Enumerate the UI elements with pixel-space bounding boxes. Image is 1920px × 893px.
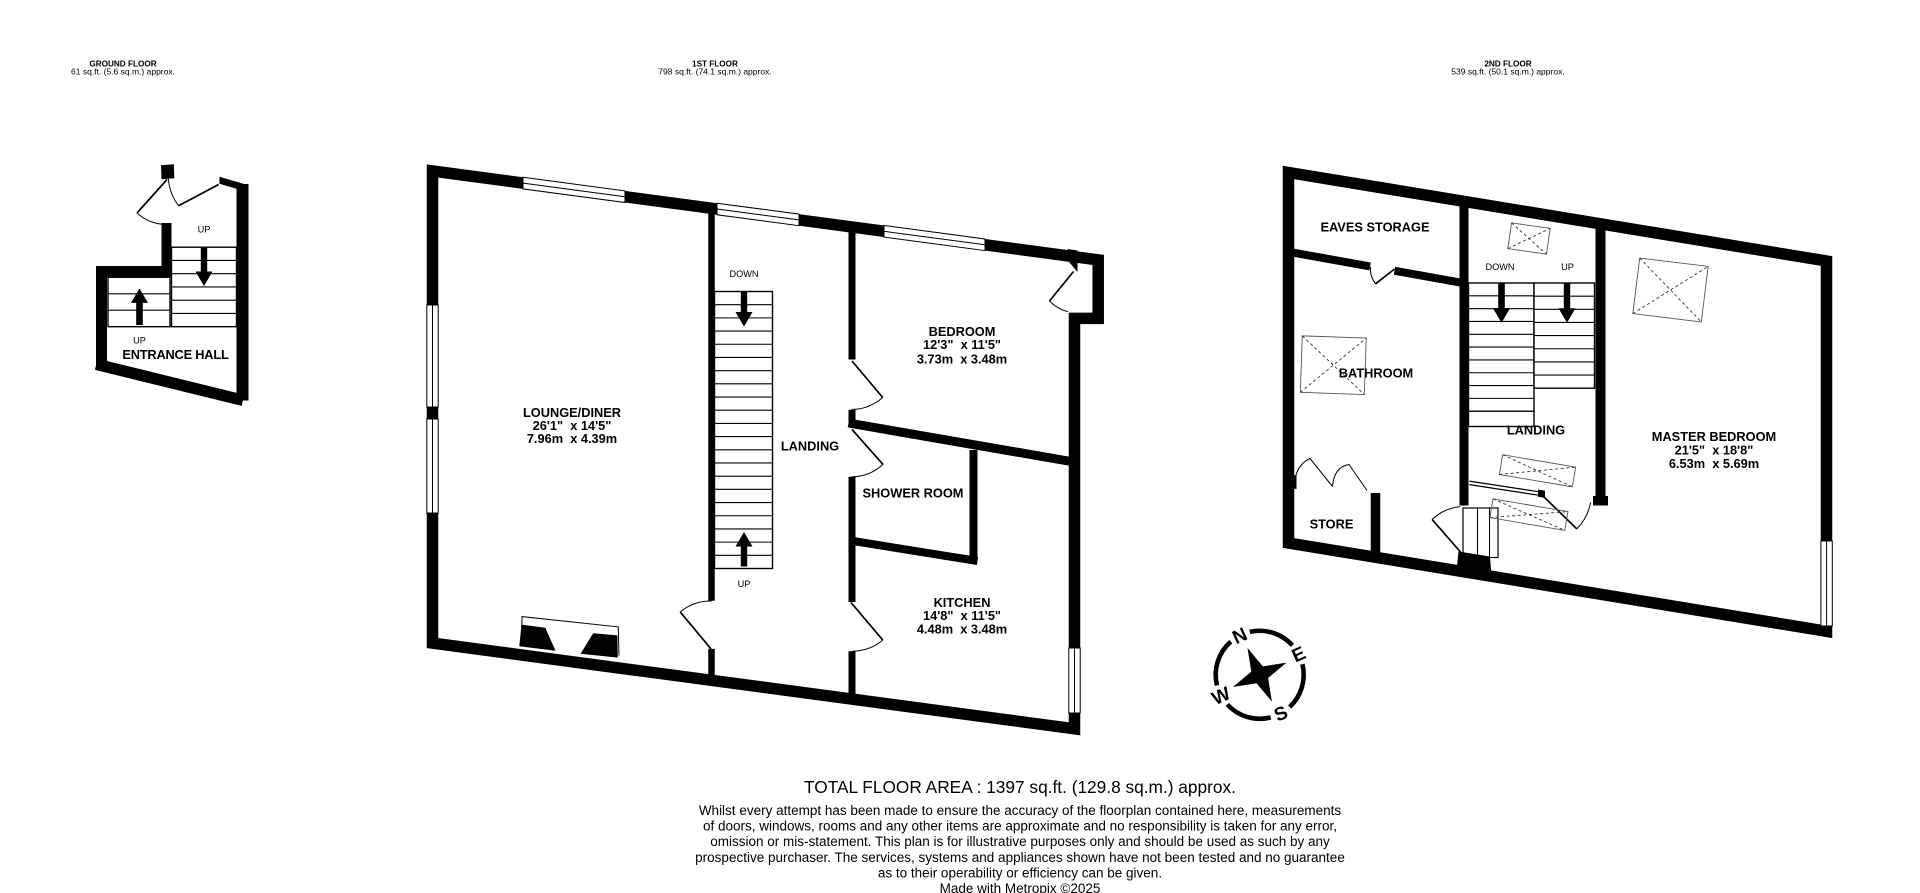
svg-text:of doors, windows, rooms and a: of doors, windows, rooms and any other i… xyxy=(703,819,1337,834)
svg-text:DOWN: DOWN xyxy=(729,269,758,279)
svg-text:EAVES STORAGE: EAVES STORAGE xyxy=(1320,220,1430,235)
svg-text:539 sq.ft. (50.1 sq.m.) approx: 539 sq.ft. (50.1 sq.m.) approx. xyxy=(1451,67,1564,77)
svg-text:UP: UP xyxy=(133,336,146,346)
svg-text:SHOWER ROOM: SHOWER ROOM xyxy=(863,486,964,501)
svg-text:Made with Metropix ©2025: Made with Metropix ©2025 xyxy=(940,881,1101,893)
svg-text:798 sq.ft. (74.1 sq.m.) approx: 798 sq.ft. (74.1 sq.m.) approx. xyxy=(658,67,771,77)
svg-text:BATHROOM: BATHROOM xyxy=(1339,366,1413,381)
svg-text:ENTRANCE HALL: ENTRANCE HALL xyxy=(122,347,229,362)
svg-text:UP: UP xyxy=(198,225,211,235)
svg-text:7.96m x 4.39m: 7.96m x 4.39m xyxy=(527,431,617,446)
svg-text:4.48m x 3.48m: 4.48m x 3.48m xyxy=(917,621,1007,636)
svg-text:Whilst every attempt has been: Whilst every attempt has been made to en… xyxy=(699,803,1342,818)
svg-text:UP: UP xyxy=(1561,262,1574,272)
svg-text:12'3" x 11'5": 12'3" x 11'5" xyxy=(923,337,1001,352)
svg-text:as to their operability or eff: as to their operability or efficiency ca… xyxy=(878,865,1162,880)
svg-text:TOTAL FLOOR AREA : 1397 sq.ft.: TOTAL FLOOR AREA : 1397 sq.ft. (129.8 sq… xyxy=(804,777,1236,797)
svg-text:6.53m x 5.69m: 6.53m x 5.69m xyxy=(1669,456,1759,471)
svg-text:DOWN: DOWN xyxy=(1485,262,1514,272)
svg-text:61 sq.ft. (5.6 sq.m.) approx.: 61 sq.ft. (5.6 sq.m.) approx. xyxy=(71,67,175,77)
svg-text:3.73m x 3.48m: 3.73m x 3.48m xyxy=(917,351,1007,366)
svg-text:STORE: STORE xyxy=(1310,517,1354,532)
svg-text:prospective purchaser. The ser: prospective purchaser. The services, sys… xyxy=(695,850,1345,865)
svg-text:omission or mis-statement. Thi: omission or mis-statement. This plan is … xyxy=(710,834,1330,849)
svg-text:UP: UP xyxy=(738,579,751,589)
svg-text:LANDING: LANDING xyxy=(1507,423,1565,438)
svg-text:LANDING: LANDING xyxy=(781,439,839,454)
